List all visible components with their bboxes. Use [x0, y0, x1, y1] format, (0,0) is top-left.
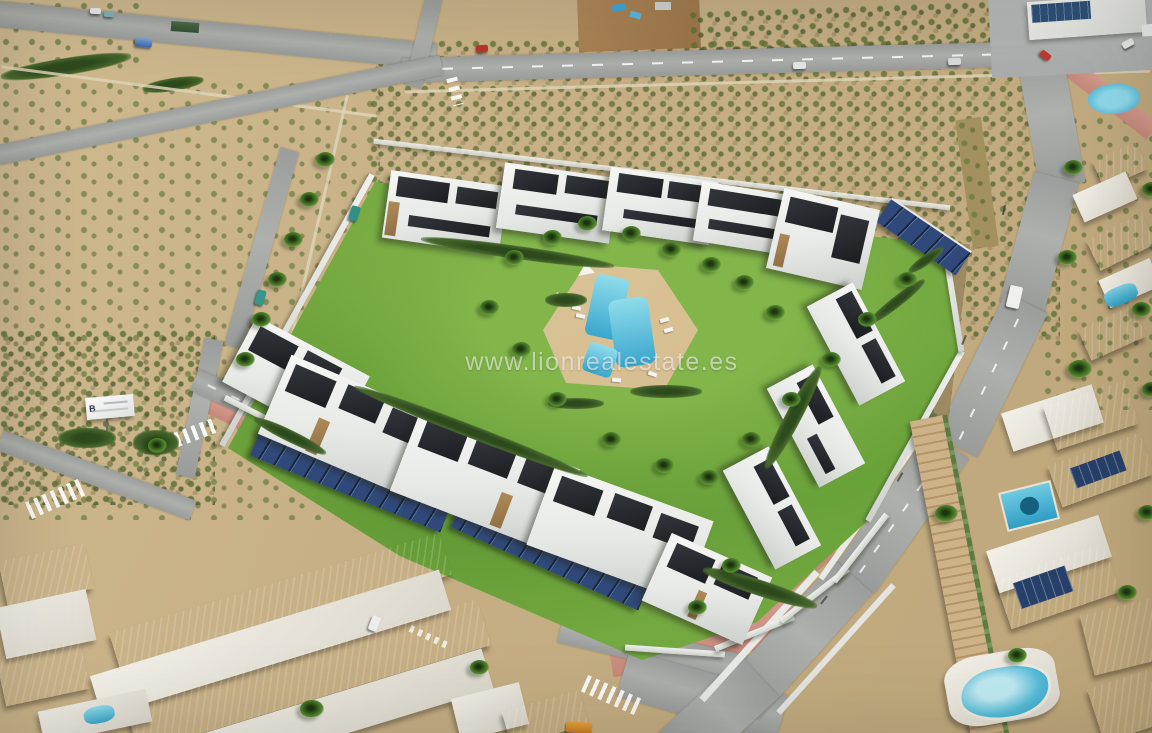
palm-tree	[722, 558, 741, 573]
stone-cladding	[490, 492, 514, 529]
palm-tree	[662, 242, 681, 257]
sun-lounger	[612, 378, 621, 383]
orange-machine	[566, 721, 593, 733]
palm-tree	[700, 470, 719, 485]
palm-tree	[655, 458, 674, 473]
palm-tree	[622, 226, 641, 241]
roof-terrace	[606, 493, 653, 531]
aerial-photo: B	[0, 0, 1152, 733]
waste-containers	[171, 21, 200, 33]
palm-tree	[1058, 250, 1077, 265]
palm-tree	[1132, 302, 1151, 317]
shrub-row	[545, 293, 587, 307]
palm-tree	[602, 432, 621, 447]
billboard: B	[85, 394, 135, 420]
roof-terrace	[564, 175, 609, 199]
roof-terrace	[285, 364, 337, 408]
billboard-text-line	[92, 407, 128, 412]
palm-tree	[284, 232, 303, 247]
roof-terrace	[456, 186, 498, 209]
shrub-row	[630, 385, 702, 398]
roof-terrace	[708, 189, 783, 217]
palm-tree	[480, 300, 499, 315]
private-pool-rect	[998, 480, 1060, 532]
pool-center-feature	[1018, 495, 1041, 517]
roof-terrace	[396, 176, 450, 203]
terraced-dirt-top	[577, 0, 701, 52]
palm-tree	[702, 257, 721, 272]
palm-tree	[782, 392, 801, 407]
palm-tree	[1008, 648, 1027, 663]
villa-roof	[1087, 669, 1152, 733]
roof-terrace	[553, 475, 603, 516]
roof-terrace	[513, 169, 559, 195]
palm-tree	[858, 312, 877, 327]
window-band	[407, 215, 490, 237]
palm-tree	[236, 352, 255, 367]
palm-tree	[578, 216, 597, 231]
palm-tree	[148, 438, 167, 453]
roof-terrace	[785, 196, 839, 233]
warehouse-solar-roof	[1031, 1, 1091, 23]
palm-tree	[1068, 360, 1092, 378]
palm-tree	[1064, 160, 1083, 175]
stone-cladding	[773, 233, 790, 267]
palm-tree	[268, 272, 287, 287]
palm-tree	[505, 250, 524, 265]
bush-cluster	[58, 428, 116, 448]
palm-tree	[735, 275, 754, 290]
solar-panels	[1069, 450, 1127, 488]
palm-tree	[543, 230, 562, 245]
vehicle-red	[476, 45, 488, 53]
billboard-logo: B	[89, 403, 96, 414]
palm-tree	[300, 700, 324, 718]
watermark: www.lionrealestate.es	[432, 348, 772, 377]
palm-tree	[548, 392, 567, 407]
vehicle-white	[90, 8, 101, 15]
billboard-text-line	[104, 400, 128, 404]
private-pool	[82, 703, 116, 726]
palm-tree	[935, 505, 958, 522]
palm-tree	[1138, 505, 1152, 520]
window-band	[708, 219, 775, 239]
palm-tree	[742, 432, 761, 447]
palm-tree	[1118, 585, 1137, 600]
warehouse-shed	[1142, 23, 1152, 36]
palm-tree	[300, 192, 319, 207]
construction-shed	[655, 2, 671, 10]
vehicle-teal	[104, 11, 114, 18]
roof-terrace	[831, 214, 870, 264]
solar-panels	[1013, 566, 1074, 610]
roof-terrace	[616, 173, 664, 198]
vehicle-van-blue	[135, 37, 153, 48]
palm-tree	[688, 600, 707, 615]
palm-tree	[252, 312, 271, 327]
palm-tree	[470, 660, 489, 675]
palm-tree	[766, 305, 785, 320]
vehicle-white	[948, 58, 961, 65]
vehicle-white	[793, 62, 806, 69]
roof-terrace	[667, 543, 715, 583]
window-band	[807, 433, 836, 474]
palm-tree	[316, 152, 335, 167]
stone-cladding	[385, 201, 400, 236]
palm-tree	[898, 272, 917, 287]
palm-tree	[822, 352, 841, 367]
villa-roof	[1080, 598, 1152, 676]
